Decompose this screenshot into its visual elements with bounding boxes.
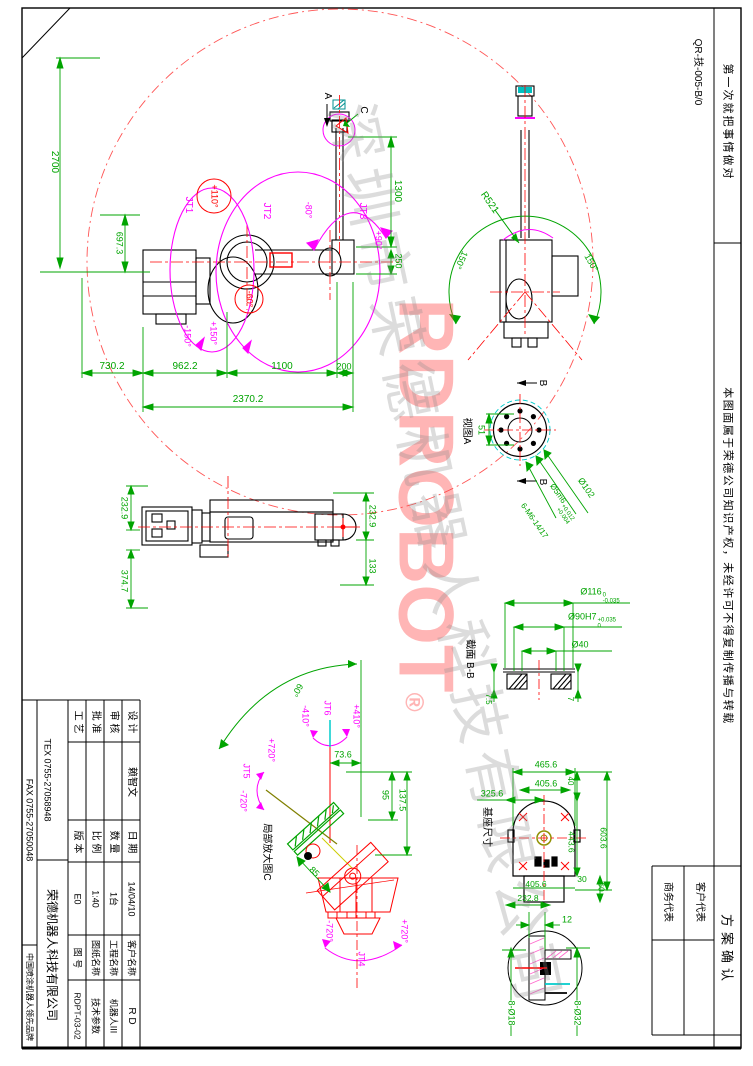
dim-73-6: 73.6 xyxy=(334,751,352,760)
dim-95: 95 xyxy=(381,790,390,800)
rear-view-centerlines xyxy=(468,85,582,360)
doc-number: QR-技-005-B/0 xyxy=(692,39,702,106)
dim-40: 40 xyxy=(566,777,574,786)
base-view-title: 基座尺寸 xyxy=(481,807,491,847)
design-label: 设 计 xyxy=(126,711,136,734)
business-rep-label: 商务代表 xyxy=(662,882,672,922)
dim-7: 7 xyxy=(566,697,574,701)
sheetname-label: 图纸名称 xyxy=(91,940,100,976)
dim-d4: 200 xyxy=(336,363,351,372)
jt5-label: JT5 xyxy=(242,763,251,778)
dim-offset: 250 xyxy=(394,253,403,268)
dim-reach: 2700 xyxy=(49,151,59,173)
designer-name: 赖智文 xyxy=(126,767,136,797)
dim-405-6-bottom: 405.6 xyxy=(525,880,546,889)
dim-12: 12 xyxy=(562,916,572,925)
dim-30: 30 xyxy=(577,875,586,884)
jt3-max-angle: +90° xyxy=(374,231,383,250)
section-a-label: A xyxy=(322,93,332,100)
dim-phi90-sub: 0 xyxy=(598,624,617,630)
dim-side-w1: 232.9 xyxy=(120,497,129,520)
fax-number: FAX 0755-27050048 xyxy=(25,779,34,862)
side-view-centerlines xyxy=(138,476,362,560)
client-label: 客户名称 xyxy=(127,940,136,976)
dim-603-6: 603.6 xyxy=(599,827,608,848)
side-view-robot xyxy=(142,500,356,557)
section-bb-title: 截面 B-B xyxy=(464,639,474,678)
scale-label: 比 例 xyxy=(90,831,100,854)
dim-405-6-top: 405.6 xyxy=(535,780,558,789)
date-value: 14/04/10 xyxy=(127,881,136,916)
dim-8-phi32: 8-Ø32 xyxy=(573,1000,582,1025)
dim-side-off: 133 xyxy=(368,558,377,573)
jt6-max-angle: +410° xyxy=(352,704,361,728)
project-value: 机器人III xyxy=(109,999,118,1034)
detail-c-pivot-dot xyxy=(304,852,312,860)
dim-phi40: Ø40 xyxy=(571,641,588,650)
approval-title: 方案确认 xyxy=(721,914,734,986)
jt6-min-angle: -410° xyxy=(301,705,310,727)
detail-c-flange-plates xyxy=(288,802,344,855)
approve-label: 批 准 xyxy=(90,711,100,734)
slogan: 第一次就把事情做对 xyxy=(722,64,733,181)
jt5-min-angle: -720° xyxy=(239,790,248,812)
ip-notice: 本图面属于荣德公司知识产权，未经许可不得复制传播与转载 xyxy=(722,387,733,725)
view-a-title: 视图A xyxy=(461,418,471,445)
dim-51: 51 xyxy=(477,425,486,435)
dim-phi116: Ø1160-0.035 xyxy=(580,588,619,605)
jt2-label: JT2 xyxy=(261,203,271,220)
dim-d2: 962.2 xyxy=(172,362,197,372)
dim-side-w2: 232.9 xyxy=(368,505,377,528)
detail-c-wrist-body xyxy=(306,842,398,988)
scale-value: 1:40 xyxy=(91,890,100,908)
dim-137-5: 137.5 xyxy=(398,789,407,812)
jt1-label: JT1 xyxy=(183,197,193,214)
jt1-max-angle: +110° xyxy=(210,184,219,207)
sheetname-value: 技术参数 xyxy=(91,998,100,1034)
company-tagline: 中国喷涂机器人领先品牌 xyxy=(25,953,33,1041)
jt4-label: JT4 xyxy=(357,951,366,966)
date-label: 日 期 xyxy=(126,831,136,854)
rear-view-robot xyxy=(500,86,578,347)
process-label: 工 艺 xyxy=(72,711,82,734)
jt3-min-angle: -80° xyxy=(304,202,313,219)
jt2-min-angle: -60° xyxy=(245,291,254,308)
jt4-max-angle: +720° xyxy=(400,919,409,943)
number-label: 图 号 xyxy=(73,948,82,969)
detail-c-ref-label: C xyxy=(358,106,368,113)
section-b-label-bottom: B xyxy=(537,479,547,486)
qty-value: 1台 xyxy=(109,892,118,906)
dim-side-l1: 374.7 xyxy=(120,570,129,593)
tex-number: TEX 0755-27058948 xyxy=(43,738,52,821)
qty-label: 数 量 xyxy=(108,831,118,854)
dim-7-5: 7.5 xyxy=(484,693,492,704)
drawing-sheet: RDROBOT® 深圳市荣德机器人科技有限公司 xyxy=(0,0,753,1066)
project-label: 工程名称 xyxy=(109,940,118,976)
jt5-max-angle: +720° xyxy=(267,738,276,762)
dim-phi90: Ø90H7+0.0350 xyxy=(568,613,616,630)
jt3-label: JT3 xyxy=(357,203,367,220)
registered-mark-icon: ® xyxy=(400,693,430,712)
dim-d1: 730.2 xyxy=(99,362,124,372)
swing-neg-angle: -150° xyxy=(183,325,192,347)
dim-d3: 1100 xyxy=(271,362,293,372)
dim-arm: 1300 xyxy=(392,180,402,202)
dim-phi90-main: Ø90H7 xyxy=(568,612,597,622)
swing-pos-angle: +150° xyxy=(209,321,218,345)
dim-443-6: 443.6 xyxy=(567,831,576,852)
company-name: 荣德机器人科技有限公司 xyxy=(46,889,58,1021)
side-view-dimensions xyxy=(126,486,374,608)
dim-60: 60 xyxy=(597,882,606,891)
dim-325-6: 325.6 xyxy=(481,790,504,799)
version-label: 版 本 xyxy=(72,831,82,854)
version-value: E0 xyxy=(73,893,82,904)
audit-label: 审 核 xyxy=(108,711,118,734)
dim-shoulder: 697.3 xyxy=(115,232,124,255)
detail-c-title: 局部放大图C xyxy=(261,823,271,880)
dim-phi116-main: Ø116 xyxy=(580,587,601,597)
dim-8-phi18: 8-Ø18 xyxy=(507,1000,516,1025)
dim-phi116-sub: -0.035 xyxy=(603,599,620,605)
dim-465-6: 465.6 xyxy=(535,761,558,770)
dim-232-8: 232.8 xyxy=(517,894,538,903)
client-value: R D xyxy=(126,1007,136,1024)
jt6-label: JT6 xyxy=(323,700,332,715)
dim-total: 2370.2 xyxy=(233,395,264,405)
number-value: RDPT-03-02 xyxy=(73,992,82,1039)
jt4-min-angle: -720° xyxy=(325,920,334,942)
section-b-label-top: B xyxy=(537,380,547,387)
customer-rep-label: 客户代表 xyxy=(694,882,704,922)
